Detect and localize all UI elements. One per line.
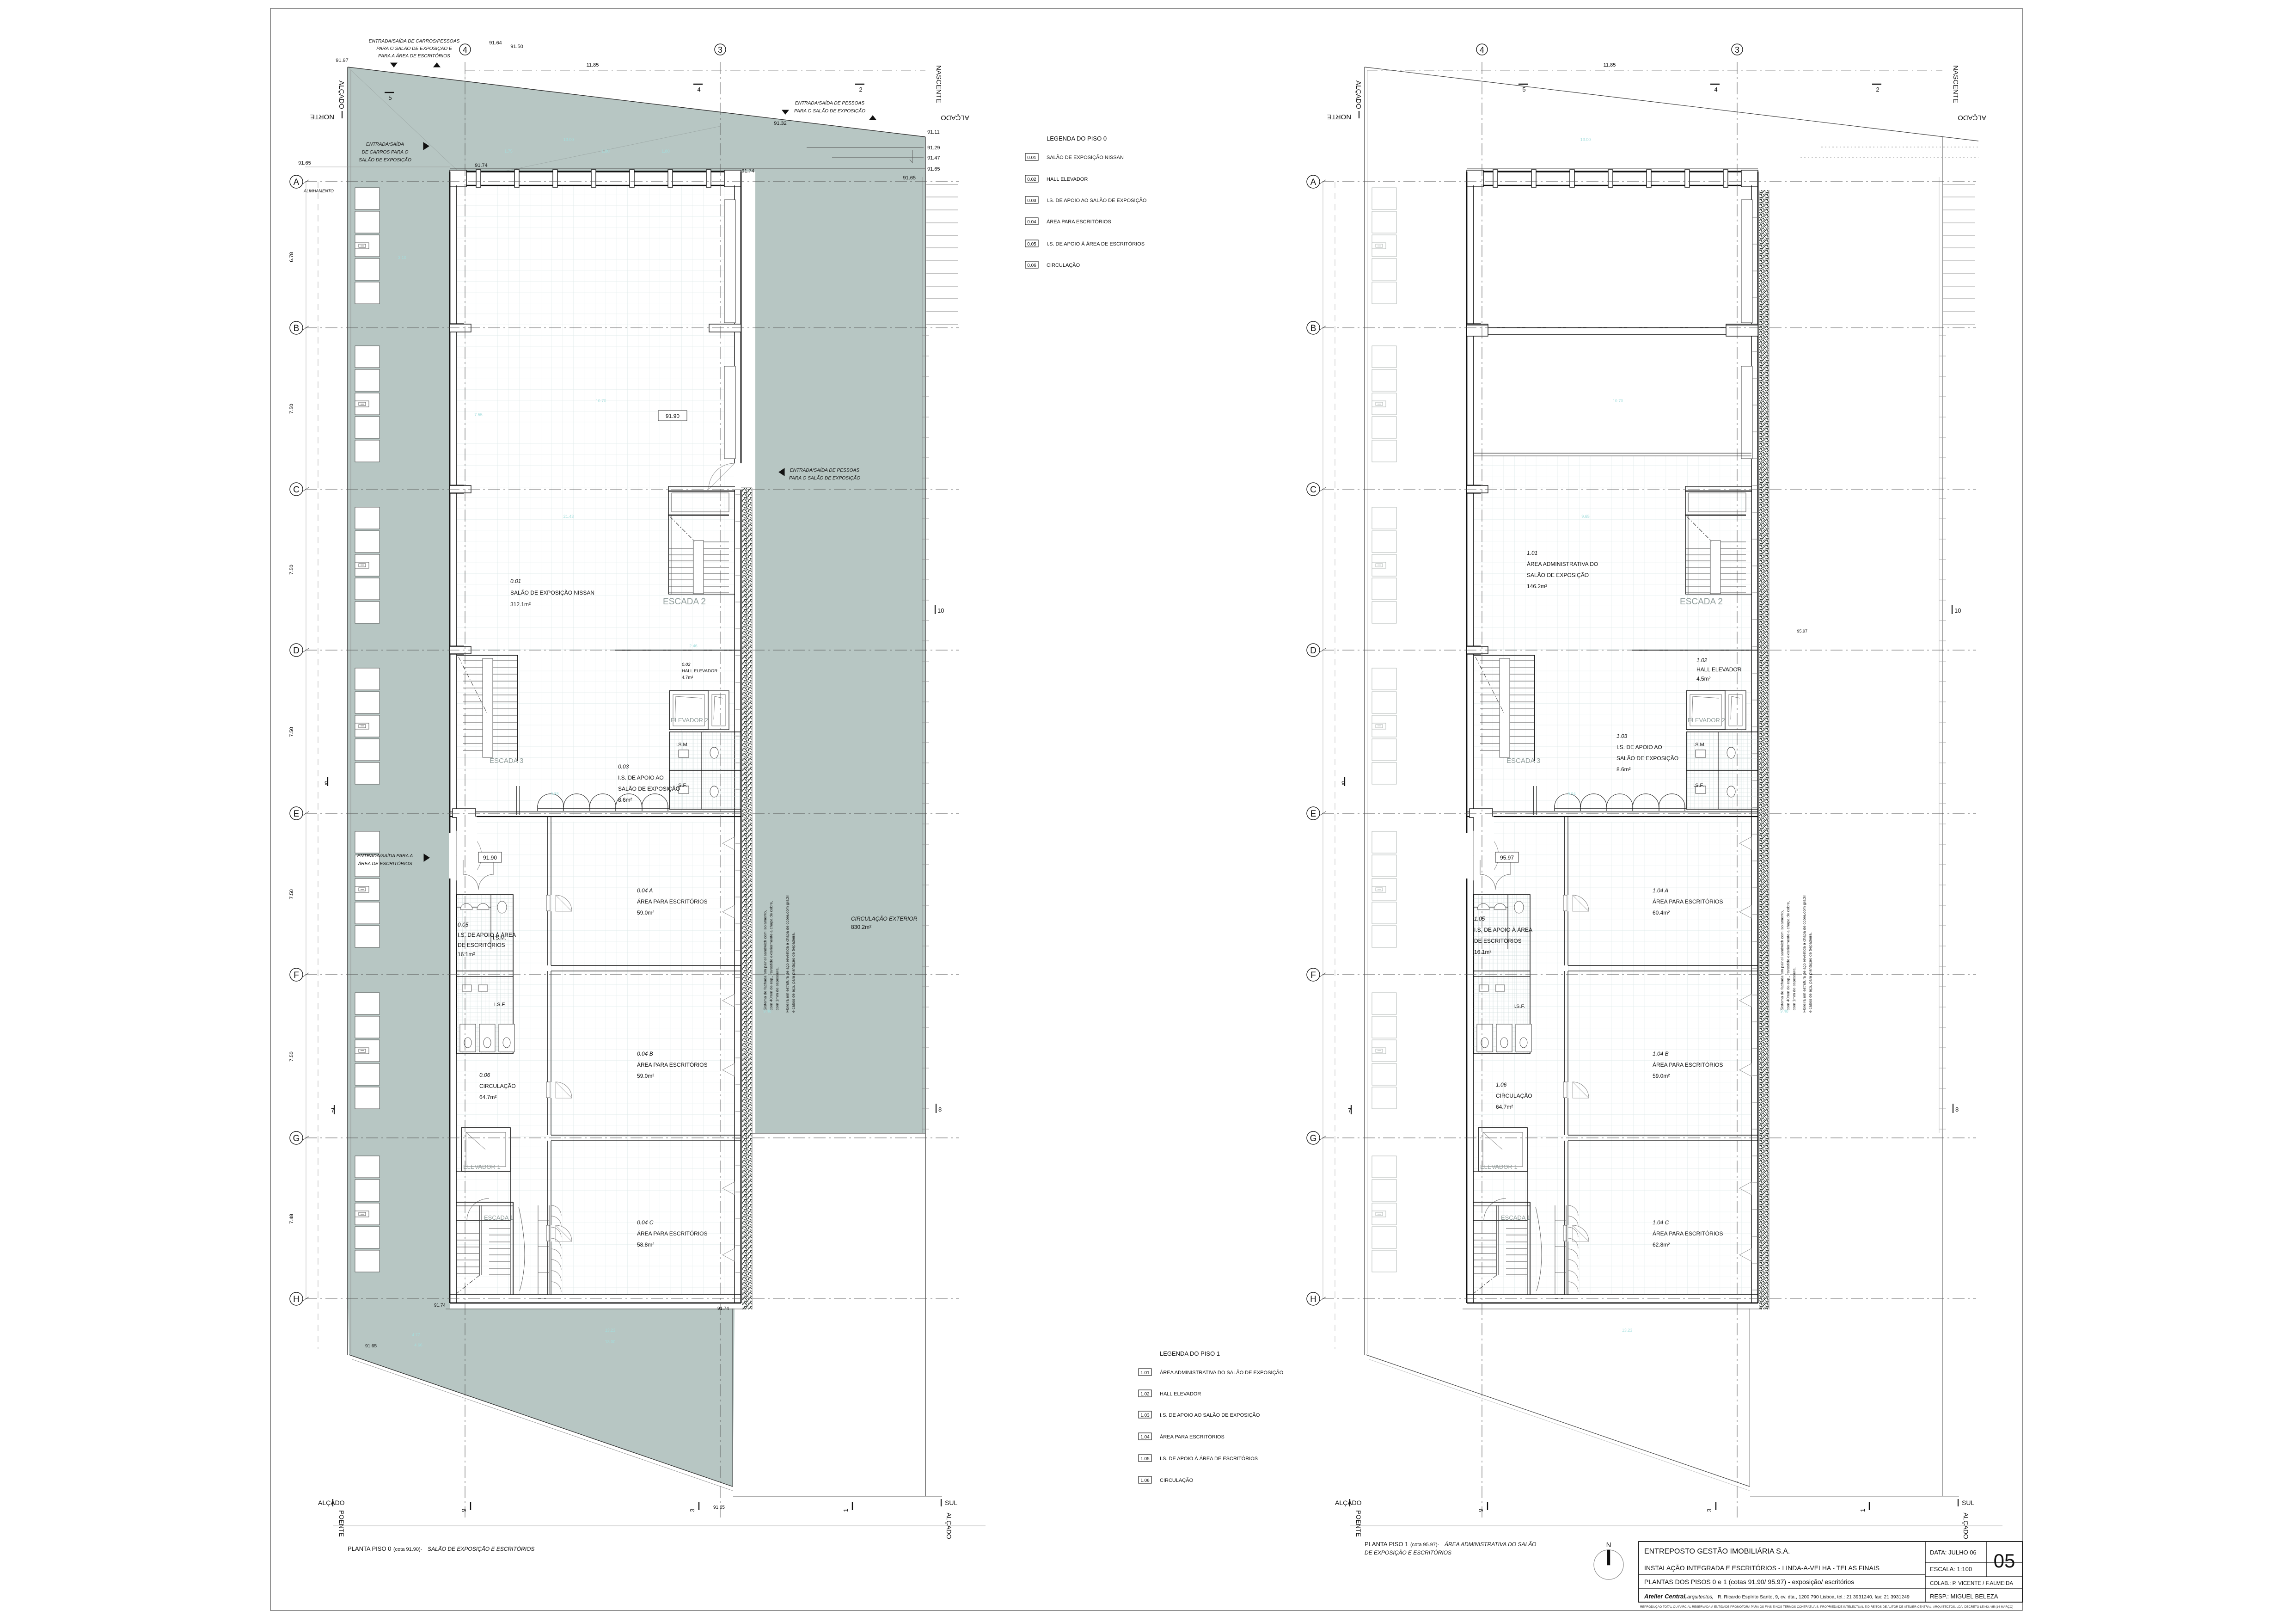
svg-text:91.29: 91.29	[927, 145, 940, 151]
svg-text:I.S.F.: I.S.F.	[1513, 1004, 1525, 1009]
svg-text:I.S.M.: I.S.M.	[675, 742, 689, 748]
svg-text:58.8m²: 58.8m²	[637, 1241, 654, 1248]
svg-text:I.S. DE APOIO AO: I.S. DE APOIO AO	[1616, 744, 1662, 750]
svg-text:7.50: 7.50	[289, 565, 294, 574]
svg-text:Sistema de fachada em painel s: Sistema de fachada em painel sandwich co…	[763, 910, 767, 1010]
svg-text:A: A	[1310, 178, 1316, 187]
svg-text:(cota 95.97)-: (cota 95.97)-	[1410, 1542, 1439, 1548]
svg-text:91.50: 91.50	[510, 44, 523, 49]
svg-text:H: H	[1310, 1295, 1316, 1304]
svg-text:ÁREA PARA ESCRITÓRIOS: ÁREA PARA ESCRITÓRIOS	[637, 1230, 707, 1237]
svg-text:ALÇADO: ALÇADO	[337, 80, 345, 109]
svg-text:05: 05	[1994, 1550, 2015, 1572]
svg-text:SUL: SUL	[1962, 1499, 1974, 1506]
svg-text:1.05: 1.05	[1474, 915, 1485, 922]
svg-text:DATA: JULHO 06: DATA: JULHO 06	[1930, 1549, 1977, 1556]
svg-text:830.2m²: 830.2m²	[851, 924, 871, 930]
svg-text:0.01: 0.01	[1027, 155, 1036, 160]
svg-text:1.01: 1.01	[1140, 1370, 1150, 1376]
svg-text:60.4m²: 60.4m²	[1653, 909, 1670, 916]
svg-text:D: D	[1310, 646, 1316, 656]
svg-text:RESP.: MIGUEL BELEZA: RESP.: MIGUEL BELEZA	[1930, 1593, 1998, 1600]
svg-text:16.1m²: 16.1m²	[458, 951, 475, 958]
svg-text:ALÇADO: ALÇADO	[1335, 1499, 1362, 1506]
svg-text:SALÃO DE EXPOSIÇÃO: SALÃO DE EXPOSIÇÃO	[1527, 572, 1589, 578]
svg-text:DE ESCRITÓRIOS: DE ESCRITÓRIOS	[1474, 937, 1522, 944]
svg-text:DE ESCRITÓRIOS: DE ESCRITÓRIOS	[458, 941, 505, 948]
svg-text:I.S. DE APOIO À ÁREA: I.S. DE APOIO À ÁREA	[1474, 926, 1532, 933]
svg-text:3: 3	[689, 1509, 696, 1512]
svg-text:9.94: 9.94	[1567, 792, 1576, 796]
svg-text:SALÃO DE EXPOSIÇÃO: SALÃO DE EXPOSIÇÃO	[618, 786, 680, 792]
svg-text:2: 2	[859, 86, 862, 93]
svg-text:Sistema de fachada em painel s: Sistema de fachada em painel sandwich co…	[1780, 910, 1784, 1010]
svg-text:1.05: 1.05	[1140, 1456, 1150, 1462]
svg-text:1.80: 1.80	[661, 149, 670, 154]
svg-text:CIRCULAÇÃO: CIRCULAÇÃO	[1496, 1093, 1532, 1099]
svg-text:91.64: 91.64	[489, 40, 502, 46]
svg-text:91.74: 91.74	[741, 168, 754, 174]
svg-text:ÁREA ADMINISTRATIVA DO: ÁREA ADMINISTRATIVA DO	[1527, 560, 1598, 567]
svg-text:3.10: 3.10	[398, 255, 406, 260]
svg-text:I.S. DE APOIO AO: I.S. DE APOIO AO	[618, 774, 664, 781]
svg-text:HALL ELEVADOR: HALL ELEVADOR	[1047, 177, 1088, 182]
svg-text:COLAB.: P. VICENTE / F.ALMEID: COLAB.: P. VICENTE / F.ALMEIDA	[1930, 1581, 2013, 1586]
svg-text:9.65: 9.65	[1581, 514, 1590, 519]
svg-text:ELEVADOR 2: ELEVADOR 2	[671, 717, 708, 724]
svg-text:arquitectos,: arquitectos,	[1687, 1594, 1714, 1600]
svg-text:I.S.M.: I.S.M.	[493, 935, 506, 941]
svg-text:7.50: 7.50	[289, 727, 294, 737]
svg-text:ÁREA DE ESCRITÓRIOS: ÁREA DE ESCRITÓRIOS	[357, 860, 412, 866]
svg-text:0.02: 0.02	[1027, 177, 1036, 182]
svg-text:I.S.F.: I.S.F.	[1692, 783, 1704, 788]
svg-text:I.S. DE APOIO À ÁREA: I.S. DE APOIO À ÁREA	[458, 931, 516, 938]
svg-text:ENTRADA/SAÍDA DE PESSOAS: ENTRADA/SAÍDA DE PESSOAS	[795, 100, 864, 106]
svg-text:21.43: 21.43	[563, 514, 574, 519]
svg-text:ÁREA PARA ESCRITÓRIOS: ÁREA PARA ESCRITÓRIOS	[1160, 1434, 1225, 1440]
svg-text:B: B	[1310, 324, 1316, 333]
svg-text:SALÃO DE EXPOSIÇÃO: SALÃO DE EXPOSIÇÃO	[1616, 755, 1678, 762]
svg-text:91.97: 91.97	[336, 58, 349, 63]
svg-text:e cabos de aço, para plantação: e cabos de aço, para plantação de trepad…	[1808, 933, 1812, 1013]
svg-text:9: 9	[1477, 1509, 1484, 1512]
svg-text:ENTREPOSTO GESTÃO IMOBILIÁRIA: ENTREPOSTO GESTÃO IMOBILIÁRIA S.A.	[1644, 1546, 1790, 1555]
svg-text:8: 8	[938, 1106, 942, 1113]
svg-text:4.5m²: 4.5m²	[1696, 676, 1711, 682]
svg-text:5: 5	[388, 94, 392, 101]
svg-text:D: D	[293, 646, 300, 656]
svg-text:4.7m²: 4.7m²	[682, 675, 693, 680]
svg-text:8.6m²: 8.6m²	[618, 797, 632, 803]
svg-text:F: F	[294, 971, 299, 980]
svg-text:ÁREA PARA ESCRITÓRIOS: ÁREA PARA ESCRITÓRIOS	[637, 1061, 707, 1068]
svg-text:1.80: 1.80	[601, 149, 610, 154]
svg-text:3: 3	[1706, 1509, 1713, 1512]
svg-text:1.02: 1.02	[1696, 657, 1708, 664]
svg-text:ENTRADA/SAÍDA PARA A: ENTRADA/SAÍDA PARA A	[357, 853, 413, 859]
svg-text:Atelier Central,: Atelier Central,	[1644, 1593, 1687, 1600]
svg-text:ESCADA 2: ESCADA 2	[663, 597, 706, 607]
svg-text:LEGENDA DO PISO 1: LEGENDA DO PISO 1	[1160, 1350, 1220, 1357]
svg-text:91.65: 91.65	[713, 1505, 725, 1510]
svg-text:E: E	[294, 809, 300, 819]
svg-text:13.00: 13.00	[1580, 137, 1591, 142]
svg-text:9.48: 9.48	[763, 1009, 771, 1014]
svg-text:7.50: 7.50	[289, 889, 294, 899]
svg-text:ÁREA PARA ESCRITÓRIOS: ÁREA PARA ESCRITÓRIOS	[1653, 898, 1723, 905]
svg-text:2.46: 2.46	[689, 644, 698, 648]
svg-text:0.01: 0.01	[510, 578, 521, 584]
svg-text:1.06: 1.06	[1140, 1478, 1150, 1483]
svg-text:ELEVADOR 1: ELEVADOR 1	[1480, 1163, 1518, 1170]
svg-text:13.23: 13.23	[605, 1328, 616, 1333]
svg-text:1: 1	[1859, 1509, 1866, 1512]
svg-text:HALL ELEVADOR: HALL ELEVADOR	[682, 669, 717, 674]
svg-text:CIRCULAÇÃO: CIRCULAÇÃO	[1047, 262, 1080, 268]
svg-text:C: C	[1310, 485, 1316, 495]
svg-text:SALÃO DE EXPOSIÇÃO NISSAN: SALÃO DE EXPOSIÇÃO NISSAN	[1047, 154, 1124, 160]
svg-text:59.0m²: 59.0m²	[637, 1073, 654, 1079]
svg-text:16.1m²: 16.1m²	[1474, 949, 1491, 955]
svg-text:1.02: 1.02	[1140, 1392, 1150, 1397]
svg-text:91.65: 91.65	[903, 175, 916, 181]
svg-text:2: 2	[1876, 86, 1879, 93]
svg-text:SUL: SUL	[945, 1499, 957, 1506]
svg-text:ÁREA ADMINISTRATIVA DO SALÃO D: ÁREA ADMINISTRATIVA DO SALÃO DE EXPOSIÇÃ…	[1160, 1370, 1284, 1376]
svg-text:10: 10	[937, 607, 944, 614]
svg-text:CIRCULAÇÃO: CIRCULAÇÃO	[479, 1083, 516, 1089]
svg-text:4.66: 4.66	[414, 1343, 422, 1347]
svg-text:ALINHAMENTO: ALINHAMENTO	[303, 189, 334, 193]
svg-text:R. Ricardo Espírito Santo, 9,: R. Ricardo Espírito Santo, 9, cv. dta., …	[1718, 1594, 1910, 1600]
svg-text:11.85: 11.85	[1604, 62, 1616, 68]
svg-text:ESCADA 3: ESCADA 3	[1506, 757, 1540, 765]
svg-text:ÁREA ADMINISTRATIVA DO SALÃO: ÁREA ADMINISTRATIVA DO SALÃO	[1444, 1541, 1537, 1548]
svg-text:ALÇADO: ALÇADO	[1354, 80, 1362, 109]
svg-text:I.S. DE APOIO À ÁREA DE ESCRIT: I.S. DE APOIO À ÁREA DE ESCRITÓRIOS	[1160, 1456, 1258, 1462]
svg-text:N: N	[1606, 1541, 1611, 1549]
svg-text:ALÇADO: ALÇADO	[1958, 114, 1986, 122]
svg-text:com 40mm de esp., revestido ex: com 40mm de esp., revestido exteriorment…	[1786, 901, 1790, 1010]
svg-text:64.7m²: 64.7m²	[479, 1094, 496, 1100]
svg-text:CIRCULAÇÃO EXTERIOR: CIRCULAÇÃO EXTERIOR	[851, 915, 918, 922]
svg-text:59.0m²: 59.0m²	[1653, 1073, 1670, 1079]
svg-text:7.50: 7.50	[289, 404, 294, 413]
svg-text:E: E	[1310, 809, 1316, 819]
svg-text:PLANTA PISO 1: PLANTA PISO 1	[1365, 1541, 1408, 1548]
svg-text:LEGENDA DO PISO 0: LEGENDA DO PISO 0	[1047, 135, 1107, 142]
svg-text:NASCENTE: NASCENTE	[1952, 65, 1959, 103]
svg-text:1.04 B: 1.04 B	[1653, 1051, 1669, 1057]
svg-text:13.00: 13.00	[563, 137, 574, 142]
svg-text:10.70: 10.70	[1613, 399, 1623, 403]
svg-text:0.04 B: 0.04 B	[637, 1051, 653, 1057]
svg-text:9.48: 9.48	[1780, 1009, 1788, 1014]
svg-text:DE EXPOSIÇÃO E ESCRITÓRIOS: DE EXPOSIÇÃO E ESCRITÓRIOS	[1365, 1549, 1451, 1556]
svg-text:7.50: 7.50	[289, 1051, 294, 1061]
svg-text:64.7m²: 64.7m²	[1496, 1104, 1513, 1110]
svg-text:ÁREA PARA ESCRITÓRIOS: ÁREA PARA ESCRITÓRIOS	[637, 898, 707, 905]
svg-text:ÁREA PARA ESCRITÓRIOS: ÁREA PARA ESCRITÓRIOS	[1653, 1061, 1723, 1068]
svg-text:e cabos de aço, para plantação: e cabos de aço, para plantação de trepad…	[791, 933, 796, 1013]
svg-text:I.S. DE APOIO AO SALÃO DE EXPO: I.S. DE APOIO AO SALÃO DE EXPOSIÇÃO	[1160, 1412, 1260, 1418]
svg-text:146.2m²: 146.2m²	[1527, 583, 1547, 590]
svg-text:312.1m²: 312.1m²	[510, 601, 531, 608]
svg-text:5: 5	[1522, 86, 1525, 93]
svg-text:H: H	[293, 1295, 300, 1304]
svg-text:91.47: 91.47	[927, 155, 940, 161]
svg-text:PARA A ÁREA DE ESCRITÓRIOS: PARA A ÁREA DE ESCRITÓRIOS	[378, 53, 450, 59]
svg-text:CIRCULAÇÃO: CIRCULAÇÃO	[1160, 1477, 1194, 1483]
svg-text:0.05: 0.05	[1027, 242, 1036, 247]
svg-text:NORTE: NORTE	[1327, 113, 1351, 121]
svg-text:91.65: 91.65	[927, 166, 940, 172]
svg-text:4.77: 4.77	[412, 1333, 420, 1337]
svg-text:91.11: 91.11	[927, 129, 940, 135]
svg-text:INSTALAÇÃO INTEGRADA E ESCRITÓ: INSTALAÇÃO INTEGRADA E ESCRITÓRIOS - LIN…	[1644, 1564, 1880, 1572]
svg-text:1.01: 1.01	[1527, 550, 1537, 556]
svg-text:ÁREA PARA ESCRITÓRIOS: ÁREA PARA ESCRITÓRIOS	[1653, 1230, 1723, 1237]
svg-text:7.48: 7.48	[289, 1214, 294, 1223]
svg-text:0.02: 0.02	[682, 662, 691, 667]
svg-text:13.00: 13.00	[605, 1339, 616, 1344]
svg-text:0.04 A: 0.04 A	[637, 887, 653, 894]
svg-text:10.70: 10.70	[596, 399, 606, 403]
svg-text:PARA O SALÃO DE EXPOSIÇÃO: PARA O SALÃO DE EXPOSIÇÃO	[794, 108, 865, 114]
svg-text:PLANTA PISO 0: PLANTA PISO 0	[348, 1545, 391, 1552]
svg-text:G: G	[1310, 1134, 1317, 1143]
svg-text:SALÃO DE EXPOSIÇÃO NISSAN: SALÃO DE EXPOSIÇÃO NISSAN	[510, 590, 594, 596]
svg-text:ESCADA 1: ESCADA 1	[1501, 1214, 1531, 1221]
svg-text:HALL ELEVADOR: HALL ELEVADOR	[1160, 1391, 1201, 1397]
svg-text:4: 4	[697, 86, 700, 93]
svg-text:95.97: 95.97	[1797, 629, 1807, 633]
svg-text:91.90: 91.90	[666, 413, 680, 419]
svg-text:DE CARROS PARA O: DE CARROS PARA O	[362, 150, 409, 155]
svg-text:91.74: 91.74	[717, 1306, 729, 1311]
svg-text:I.S. DE APOIO AO SALÃO DE EXPO: I.S. DE APOIO AO SALÃO DE EXPOSIÇÃO	[1047, 197, 1147, 203]
svg-text:7.55: 7.55	[474, 412, 483, 417]
svg-text:0.03: 0.03	[1027, 198, 1036, 203]
svg-text:95.97: 95.97	[1500, 854, 1514, 861]
svg-text:NORTE: NORTE	[310, 113, 334, 121]
svg-text:SALÃO DE EXPOSIÇÃO E ESCRITÓRI: SALÃO DE EXPOSIÇÃO E ESCRITÓRIOS	[428, 1545, 534, 1552]
svg-text:10: 10	[1954, 607, 1961, 614]
svg-text:SALÃO DE EXPOSIÇÃO: SALÃO DE EXPOSIÇÃO	[359, 157, 411, 163]
svg-text:com 40mm de esp., revestido ex: com 40mm de esp., revestido exteriorment…	[769, 901, 773, 1010]
svg-text:ÁREA PARA ESCRITÓRIOS: ÁREA PARA ESCRITÓRIOS	[1047, 219, 1111, 225]
svg-text:0.06: 0.06	[479, 1072, 490, 1078]
svg-text:ENTRADA/SAÍDA: ENTRADA/SAÍDA	[366, 141, 404, 147]
svg-text:HALL ELEVADOR: HALL ELEVADOR	[1696, 666, 1742, 673]
svg-text:9: 9	[460, 1509, 467, 1512]
svg-text:Floreira em estrutura de aço r: Floreira em estrutura de aço revestida a…	[1802, 896, 1806, 1013]
svg-text:4: 4	[463, 45, 467, 55]
svg-text:1.06: 1.06	[1496, 1081, 1507, 1088]
svg-text:A: A	[294, 178, 300, 187]
svg-text:4: 4	[1480, 45, 1484, 55]
svg-text:com 1mm de espessura.: com 1mm de espessura.	[1792, 967, 1796, 1010]
svg-text:62.8m²: 62.8m²	[1653, 1241, 1670, 1248]
svg-text:8: 8	[1955, 1106, 1959, 1113]
svg-text:8.6m²: 8.6m²	[1616, 766, 1631, 773]
svg-text:1.04 A: 1.04 A	[1653, 887, 1668, 894]
svg-text:59.0m²: 59.0m²	[637, 909, 654, 916]
svg-text:91.90: 91.90	[483, 854, 497, 861]
svg-text:I.S.F.: I.S.F.	[494, 1002, 506, 1008]
svg-text:PARA O SALÃO DE EXPOSIÇÃO E: PARA O SALÃO DE EXPOSIÇÃO E	[376, 45, 452, 51]
svg-text:11.85: 11.85	[587, 62, 599, 68]
svg-text:Floreira em estrutura de aço r: Floreira em estrutura de aço revestida a…	[785, 896, 790, 1013]
svg-text:C: C	[293, 485, 300, 495]
svg-text:ESCADA 3: ESCADA 3	[490, 757, 523, 765]
svg-text:91.74: 91.74	[434, 1303, 446, 1308]
svg-text:I.S. DE APOIO À ÁREA DE ESCRIT: I.S. DE APOIO À ÁREA DE ESCRITÓRIOS	[1047, 241, 1145, 247]
svg-text:ENTRADA/SAÍDA DE CARROS/PESSOA: ENTRADA/SAÍDA DE CARROS/PESSOAS	[369, 38, 460, 44]
svg-text:PLANTAS DOS PISOS 0 e 1 (cotas: PLANTAS DOS PISOS 0 e 1 (cotas 91.90/ 95…	[1644, 1578, 1854, 1585]
svg-text:91.65: 91.65	[365, 1344, 377, 1349]
svg-text:ALÇADO: ALÇADO	[318, 1499, 345, 1506]
svg-text:POENTE: POENTE	[338, 1510, 345, 1537]
svg-text:1.75: 1.75	[504, 149, 513, 154]
svg-text:1.03: 1.03	[1616, 733, 1628, 739]
svg-text:0.06: 0.06	[1027, 263, 1036, 268]
svg-text:I.S.M.: I.S.M.	[1692, 742, 1706, 748]
svg-text:ELEVADOR 2: ELEVADOR 2	[1688, 717, 1725, 724]
svg-text:1.03: 1.03	[1140, 1413, 1150, 1418]
svg-text:0.05: 0.05	[458, 922, 469, 928]
svg-text:REPRODUÇÃO TOTAL OU PARCIAL RE: REPRODUÇÃO TOTAL OU PARCIAL RESERVADA À …	[1640, 1604, 2013, 1609]
svg-text:91.32: 91.32	[774, 121, 787, 126]
svg-text:0.03: 0.03	[618, 763, 629, 770]
svg-text:(cota 91.90)-: (cota 91.90)-	[393, 1547, 422, 1552]
svg-text:0.04 C: 0.04 C	[637, 1219, 654, 1226]
svg-text:ELEVADOR 1: ELEVADOR 1	[463, 1163, 501, 1170]
svg-text:1.04: 1.04	[1140, 1435, 1150, 1440]
svg-text:3: 3	[718, 45, 722, 55]
svg-text:0.04: 0.04	[1027, 220, 1036, 225]
svg-text:91.65: 91.65	[298, 160, 311, 166]
svg-text:com 1mm de espessura.: com 1mm de espessura.	[775, 967, 779, 1010]
svg-text:ESCALA: 1:100: ESCALA: 1:100	[1930, 1566, 1972, 1573]
svg-text:NASCENTE: NASCENTE	[935, 65, 943, 103]
svg-text:13.23: 13.23	[1622, 1328, 1633, 1333]
svg-text:ALÇADO: ALÇADO	[941, 114, 969, 122]
svg-text:G: G	[293, 1134, 300, 1143]
svg-text:1: 1	[842, 1509, 849, 1512]
svg-text:4: 4	[1714, 86, 1717, 93]
svg-text:POENTE: POENTE	[1355, 1510, 1362, 1537]
svg-text:6.78: 6.78	[289, 252, 294, 262]
svg-text:ESCADA 1: ESCADA 1	[484, 1214, 514, 1221]
svg-text:ENTRADA/SAÍDA DE PESSOAS: ENTRADA/SAÍDA DE PESSOAS	[790, 467, 859, 473]
svg-text:B: B	[294, 324, 300, 333]
svg-text:F: F	[1310, 971, 1316, 980]
svg-text:9.88: 9.88	[551, 792, 559, 796]
svg-text:ESCADA 2: ESCADA 2	[1680, 597, 1723, 607]
svg-text:3: 3	[1735, 45, 1739, 55]
svg-text:PARA O SALÃO DE EXPOSIÇÃO: PARA O SALÃO DE EXPOSIÇÃO	[789, 475, 860, 481]
svg-text:91.74: 91.74	[475, 163, 488, 168]
svg-text:1.04 C: 1.04 C	[1653, 1219, 1669, 1226]
